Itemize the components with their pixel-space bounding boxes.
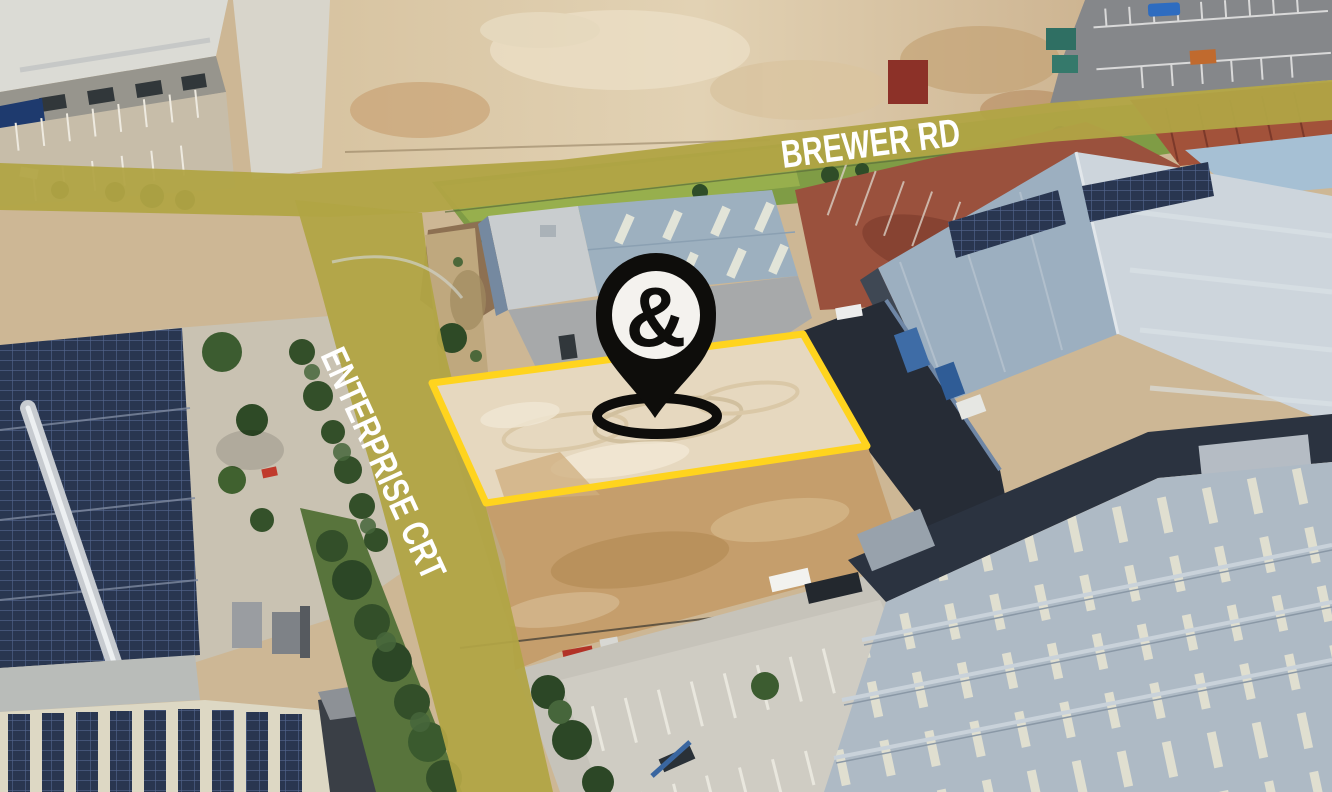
- blue-car: [1148, 2, 1181, 17]
- aerial-map: & BREWER RD ENTERPRISE CRT: [0, 0, 1332, 792]
- rooftop-unit: [540, 225, 556, 237]
- location-pin: &: [596, 253, 717, 434]
- orange-container: [1190, 49, 1217, 65]
- red-container: [888, 60, 928, 104]
- doorway: [558, 334, 577, 360]
- solar-roof-b-strips: [8, 709, 302, 792]
- teal-container: [1046, 28, 1076, 50]
- ampersand-glyph: &: [626, 270, 687, 364]
- teal-container: [1052, 55, 1078, 73]
- tree: [751, 672, 779, 700]
